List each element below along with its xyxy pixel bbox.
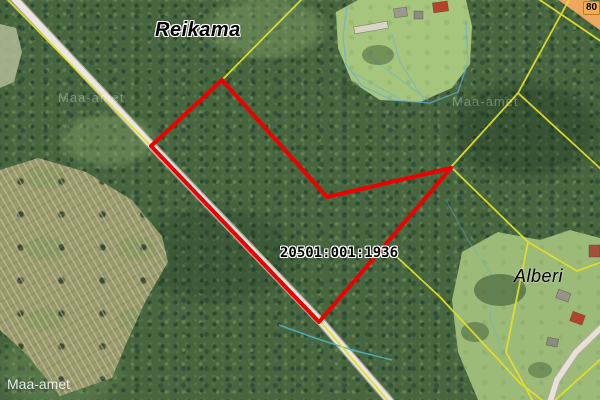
attribution-maa-amet: Maa-amet xyxy=(7,376,70,392)
place-label-alberi: Alberi xyxy=(514,266,563,287)
place-label-reikama: Reikama xyxy=(155,19,241,42)
aerial-map-canvas[interactable]: Reikama Alberi 20501:001:1936 80 Maa-ame… xyxy=(0,0,600,400)
watermark-maa-amet-left: Maa-amet xyxy=(58,90,125,105)
road-number-badge: 80 xyxy=(583,1,600,15)
watermark-maa-amet-right: Maa-amet xyxy=(452,94,519,109)
cadastral-number-label: 20501:001:1936 xyxy=(280,245,398,261)
